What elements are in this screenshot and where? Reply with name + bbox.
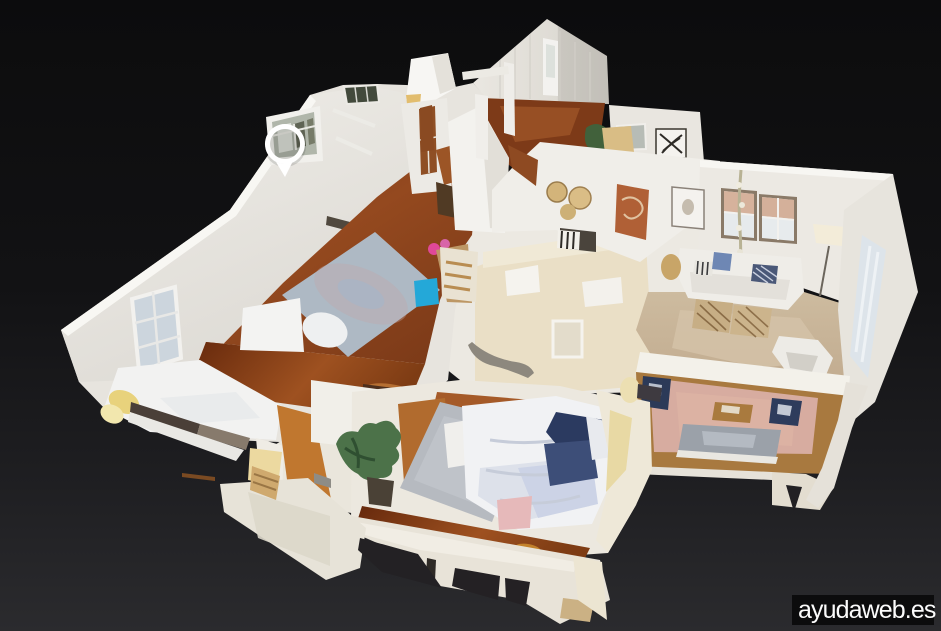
- svg-text:ayudaweb.es: ayudaweb.es: [798, 596, 936, 624]
